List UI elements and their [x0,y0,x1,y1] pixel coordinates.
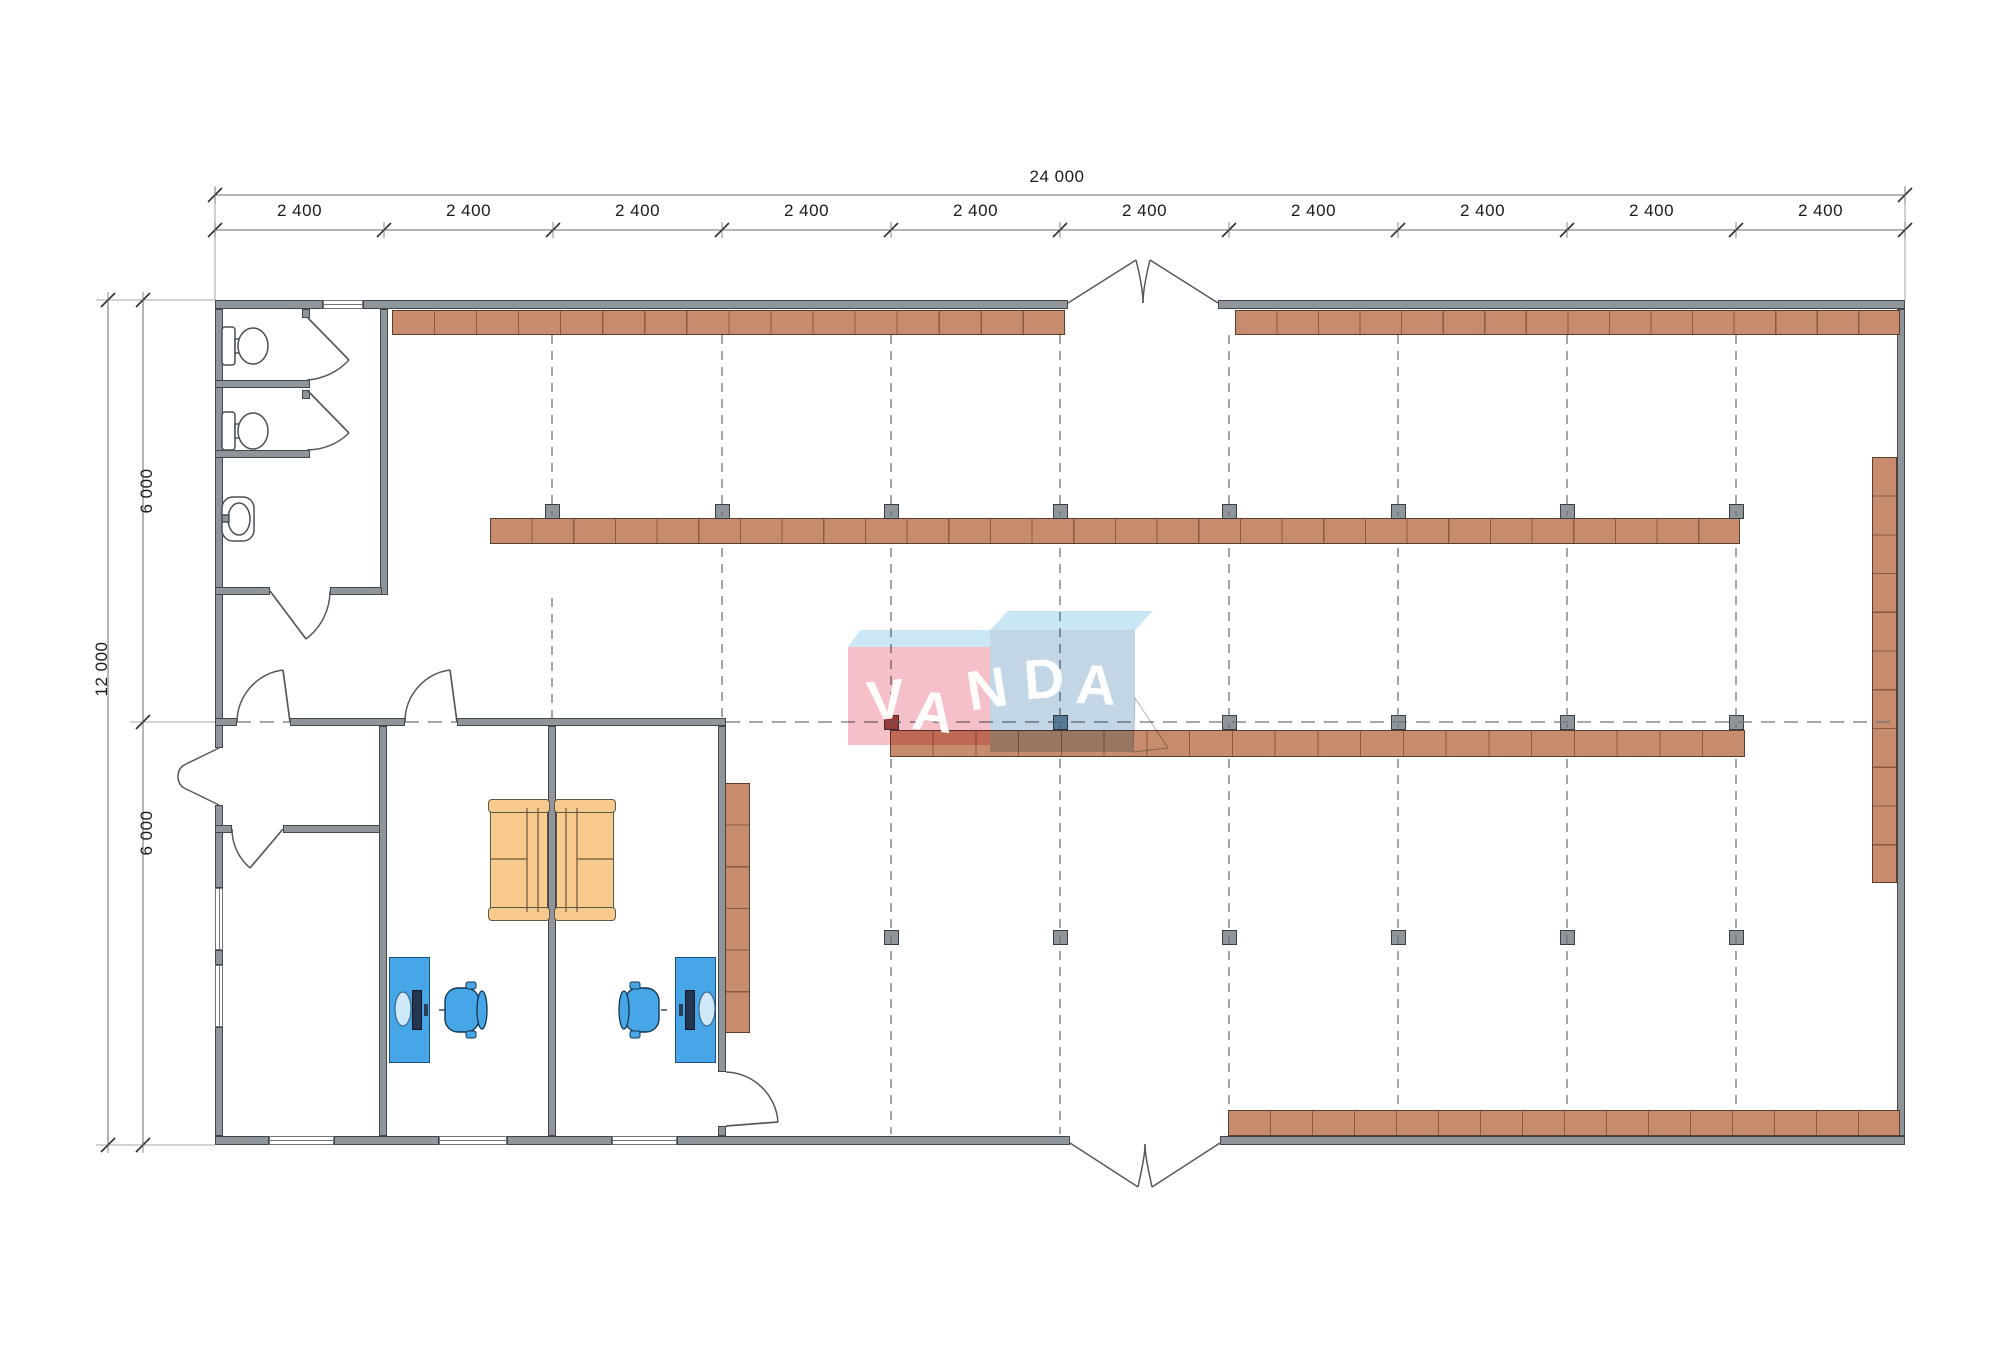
chair-back [619,991,629,1029]
logo-letter: A [1074,656,1117,714]
entrance-door-leaf [178,765,184,788]
dimension-segment-label: 2 400 [1460,201,1505,221]
entrance-door-leaf [184,788,219,805]
shelf-unit [725,783,750,1033]
couch-armrest [488,907,550,921]
wall [1897,309,1905,1136]
wall [1220,1136,1905,1145]
wall [215,300,323,309]
wall [379,726,387,1136]
floor-plan-canvas: 24 000 12 000 2 4002 4002 4002 4002 4002… [0,0,2000,1358]
door-leaf [450,670,457,722]
dimension-segment-label: 2 400 [615,201,660,221]
shelf-unit [1228,1110,1900,1136]
wall [215,309,223,748]
couch-armrest [554,799,616,813]
structural-column [1560,504,1575,519]
keyboard [679,1004,683,1016]
door-leaf [307,317,349,360]
chair-back [477,991,487,1029]
entrance-door-leaf [1150,260,1218,303]
wall [215,450,310,458]
toilet-joint [235,424,240,438]
dimension-segment-label: 6 000 [137,468,157,513]
structural-column [1729,715,1744,730]
door-swing-arc [307,360,349,380]
entrance-door-leaf [1152,1143,1220,1187]
structural-column [884,504,899,519]
toilet [222,327,268,365]
dimension-segment-label: 6 000 [137,810,157,855]
shelf-unit [392,310,1065,335]
logo-letter: V [864,670,907,730]
door-swing-arc [237,670,283,722]
shelf-unit [1872,457,1897,883]
sink [222,497,254,541]
couch-armrest [488,799,550,813]
logo-letter: N [963,658,1012,720]
window [269,1136,334,1145]
sink-counter [222,497,254,541]
door-leaf [283,670,290,722]
shelf-unit [890,730,1745,757]
logo-letter: A [910,682,957,743]
dimension-tick [208,223,222,237]
toilet-bowl [238,328,268,364]
wall [334,1136,439,1145]
chair-seat [445,988,479,1032]
dimension-total-width-label: 24 000 [1030,167,1085,187]
dimension-tick [1898,188,1912,202]
shelf-unit [1235,310,1900,335]
wall [302,309,310,318]
wall [215,1136,269,1145]
wall [548,726,556,1136]
door-leaf [307,390,349,433]
dimension-segment-label: 2 400 [1291,201,1336,221]
wall [718,1126,726,1136]
door-leaf [270,591,306,639]
wall [363,300,1068,309]
door-swing-arc [726,1072,778,1122]
keyboard [424,1004,428,1016]
structural-column [1391,504,1406,519]
entrance-door-leaf [1143,260,1150,303]
structural-column [1560,715,1575,730]
toilet-joint [235,339,240,353]
office-chair [619,982,667,1038]
logo-letter: D [1022,650,1066,709]
dimension-tick [136,293,150,307]
wall [677,1136,1070,1145]
sink-basin [228,503,250,535]
entrance-door-leaf [184,748,219,765]
dimension-tick [208,188,222,202]
dimension-tick [377,223,391,237]
structural-column [1222,504,1237,519]
toilet [222,412,268,450]
entrance-door-leaf [1138,1144,1145,1187]
dimension-segment-label: 2 400 [1122,201,1167,221]
office-chair [439,982,487,1038]
dimension-tick [884,223,898,237]
chair-armrest [466,1031,476,1038]
dimension-segment-label: 2 400 [1798,201,1843,221]
structural-column [1053,930,1068,945]
dimension-segment-label: 2 400 [446,201,491,221]
dimension-segment-label: 2 400 [953,201,998,221]
dimension-tick [1898,223,1912,237]
wall [457,718,726,726]
wall [302,390,310,399]
window [612,1136,677,1145]
window [215,888,223,950]
dimension-tick [1560,223,1574,237]
wall [215,950,223,965]
wall [283,825,383,833]
dimension-segment-label: 2 400 [1629,201,1674,221]
dimension-tick [136,715,150,729]
toilet-bowl [238,413,268,449]
wall [215,380,310,388]
couch [556,802,614,918]
dimension-tick [101,293,115,307]
computer-monitor [412,990,422,1030]
dimension-tick [1222,223,1236,237]
dimension-segment-label: 2 400 [784,201,829,221]
wall [215,825,232,833]
logo-box-face [990,611,1153,630]
chair-armrest [630,1031,640,1038]
door-swing-arc [306,591,330,639]
structural-column [1391,715,1406,730]
entrance-door-leaf [1068,260,1136,303]
chair-seat [625,988,659,1032]
window [323,300,363,309]
wall [215,587,270,595]
window [439,1136,507,1145]
logo-box-face [848,630,1002,647]
structural-column [545,504,560,519]
structural-column [1391,930,1406,945]
wall [290,718,405,726]
dimension-tick [101,1138,115,1152]
structural-column [1222,715,1237,730]
window [215,965,223,1027]
wall [330,587,382,595]
dimension-tick [1053,223,1067,237]
structural-column [1222,930,1237,945]
door-swing-arc [232,829,250,868]
dimension-total-height-label: 12 000 [92,642,112,697]
shelf-unit [490,518,1740,544]
structural-column [1729,930,1744,945]
dimension-tick [1729,223,1743,237]
wall [1218,300,1905,309]
dimension-tick [546,223,560,237]
chair-armrest [466,982,476,989]
structural-column [1053,715,1068,730]
door-leaf [250,829,283,868]
computer-monitor [685,990,695,1030]
entrance-door-leaf [1145,1144,1152,1187]
dimension-tick [1391,223,1405,237]
wall [215,805,223,888]
door-leaf [726,1122,778,1126]
dimension-tick [136,1138,150,1152]
wall [507,1136,612,1145]
structural-column [715,504,730,519]
wall [215,718,237,726]
structural-column [1729,504,1744,519]
structural-column [1053,504,1068,519]
toilet-tank [222,327,235,365]
door-swing-arc [307,433,349,450]
couch [490,802,548,918]
structural-column [1560,930,1575,945]
couch-armrest [554,907,616,921]
structural-column [884,930,899,945]
dimension-segment-label: 2 400 [277,201,322,221]
chair-armrest [630,982,640,989]
sink-tap [222,515,229,522]
toilet-tank [222,412,235,450]
door-swing-arc [405,670,450,722]
entrance-door-leaf [1136,260,1143,303]
entrance-door-leaf [1070,1143,1138,1187]
dimension-tick [715,223,729,237]
wall [215,1027,223,1136]
wall [380,309,388,595]
